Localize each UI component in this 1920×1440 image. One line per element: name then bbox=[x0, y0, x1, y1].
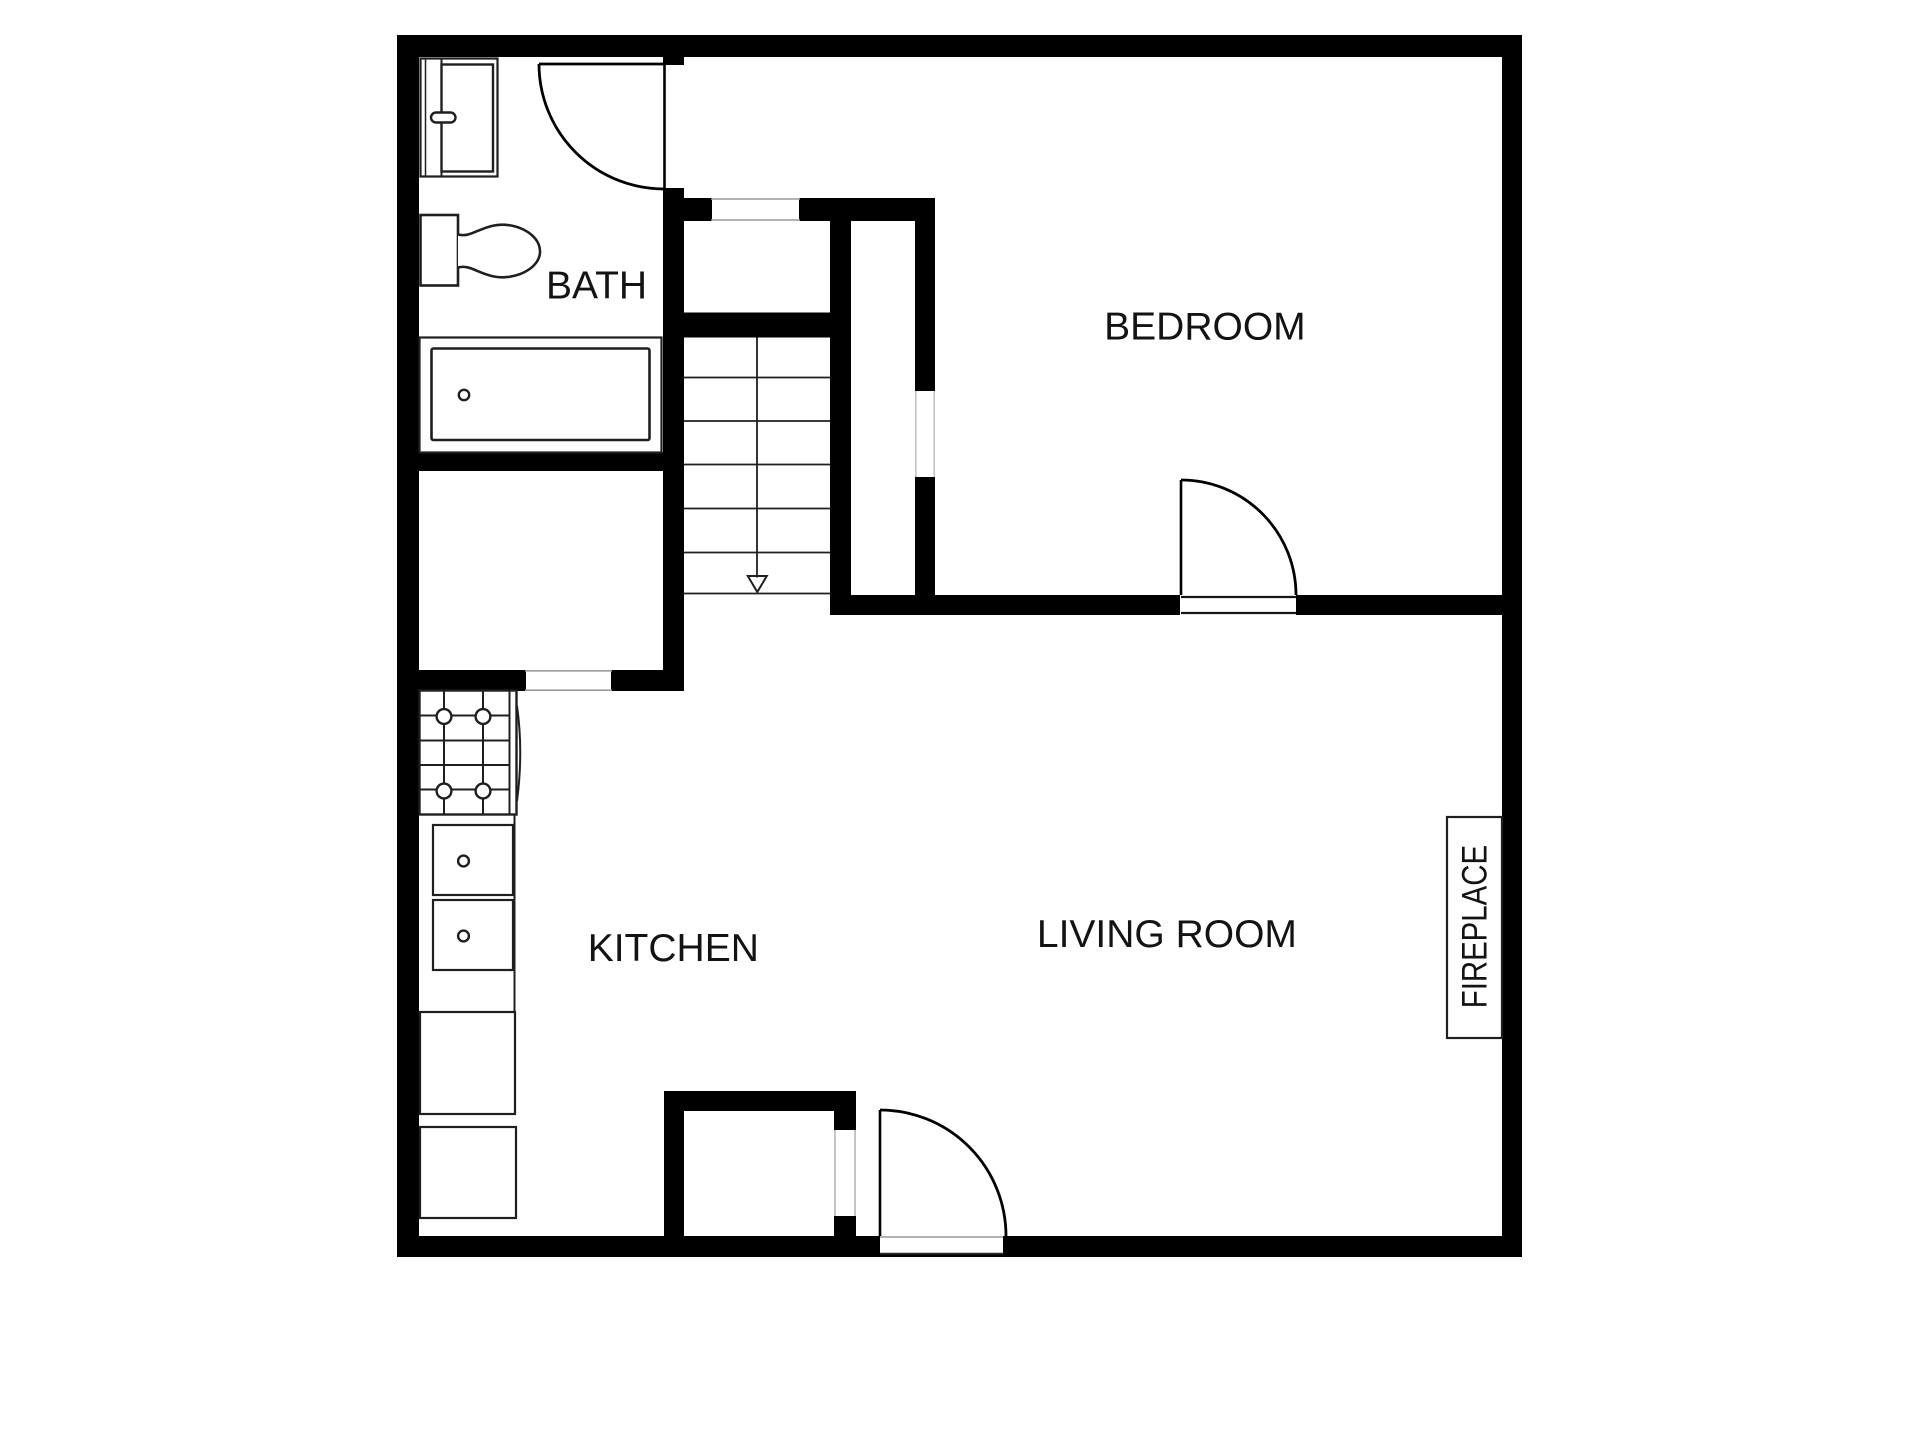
svg-text:BATH: BATH bbox=[546, 264, 647, 307]
svg-text:BEDROOM: BEDROOM bbox=[1104, 306, 1306, 349]
svg-text:KITCHEN: KITCHEN bbox=[588, 927, 759, 970]
svg-text:FIREPLACE: FIREPLACE bbox=[1455, 845, 1494, 1008]
svg-text:LIVING ROOM: LIVING ROOM bbox=[1037, 913, 1297, 956]
